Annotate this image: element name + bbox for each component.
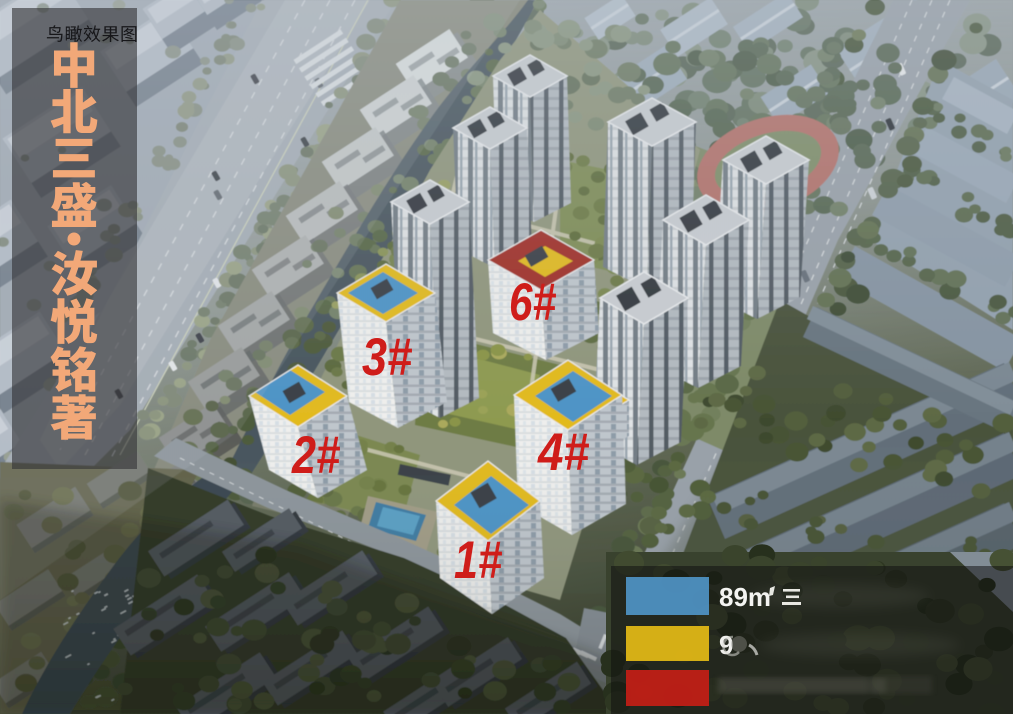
svg-text:4#: 4# (537, 423, 589, 482)
svg-text:3#: 3# (362, 328, 412, 387)
svg-text:6#: 6# (509, 273, 556, 332)
svg-text:2#: 2# (291, 426, 340, 485)
svg-text:1#: 1# (454, 531, 502, 590)
